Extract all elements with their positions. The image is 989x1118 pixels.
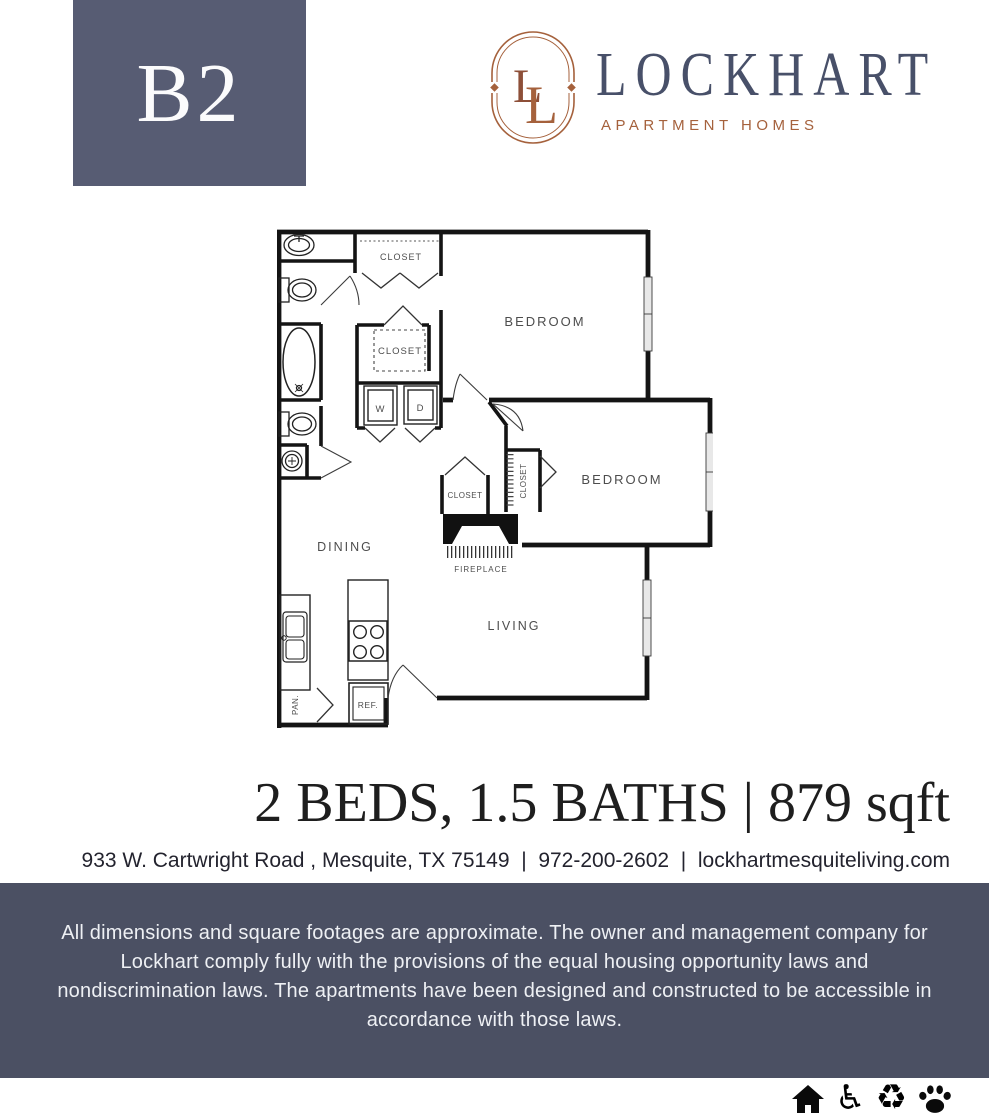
room-label-bedroom-2: BEDROOM <box>581 472 662 487</box>
amenity-icons: ♿ ♻ <box>791 1080 953 1116</box>
label-closet-nook: CLOSET <box>447 491 482 500</box>
room-label-dining: DINING <box>317 540 373 554</box>
recycle-icon: ♻ <box>876 1081 907 1116</box>
room-label-bedroom-1: BEDROOM <box>504 314 585 329</box>
label-closet-hall: CLOSET <box>380 252 422 262</box>
label-dryer: D <box>417 403 424 414</box>
label-closet-mid: CLOSET <box>378 346 422 357</box>
label-fridge: REF. <box>358 700 378 710</box>
label-closet-bed2: CLOSET <box>519 463 528 498</box>
accessibility-icon: ♿ <box>835 1081 865 1115</box>
brand-wordmark: LOCKHART <box>596 37 937 110</box>
brand-tagline: APARTMENT HOMES <box>601 117 819 134</box>
unit-label: B2 <box>136 45 242 142</box>
bath1-fixtures <box>279 235 316 397</box>
specs-headline: 2 BEDS, 1.5 BATHS | 879 sqft <box>254 771 950 835</box>
door-swings <box>321 276 523 698</box>
pet-friendly-icon <box>917 1082 953 1114</box>
room-label-living: LIVING <box>488 619 541 633</box>
lockhart-monogram-icon: L L <box>487 28 579 147</box>
disclaimer-text: All dimensions and square footages are a… <box>42 919 948 1035</box>
label-pantry: PAN. <box>291 695 300 715</box>
label-washer: W <box>376 404 385 415</box>
floor-plan: BEDROOM BEDROOM DINING LIVING CLOSET CLO… <box>277 228 713 731</box>
windows <box>643 277 713 656</box>
monogram-letter-2: L <box>525 75 558 135</box>
label-fireplace: FIREPLACE <box>454 565 507 574</box>
address-line: 933 W. Cartwright Road , Mesquite, TX 75… <box>82 849 950 873</box>
equal-housing-icon <box>791 1083 825 1114</box>
half-bath-fixtures <box>279 412 316 471</box>
unit-badge: B2 <box>73 0 306 186</box>
disclaimer-band: All dimensions and square footages are a… <box>0 883 989 1078</box>
flyer-page: B2 L L LOCKHART APARTMENT HOMES <box>0 0 989 1118</box>
interior-walls <box>277 230 540 514</box>
fireplace <box>443 514 518 544</box>
